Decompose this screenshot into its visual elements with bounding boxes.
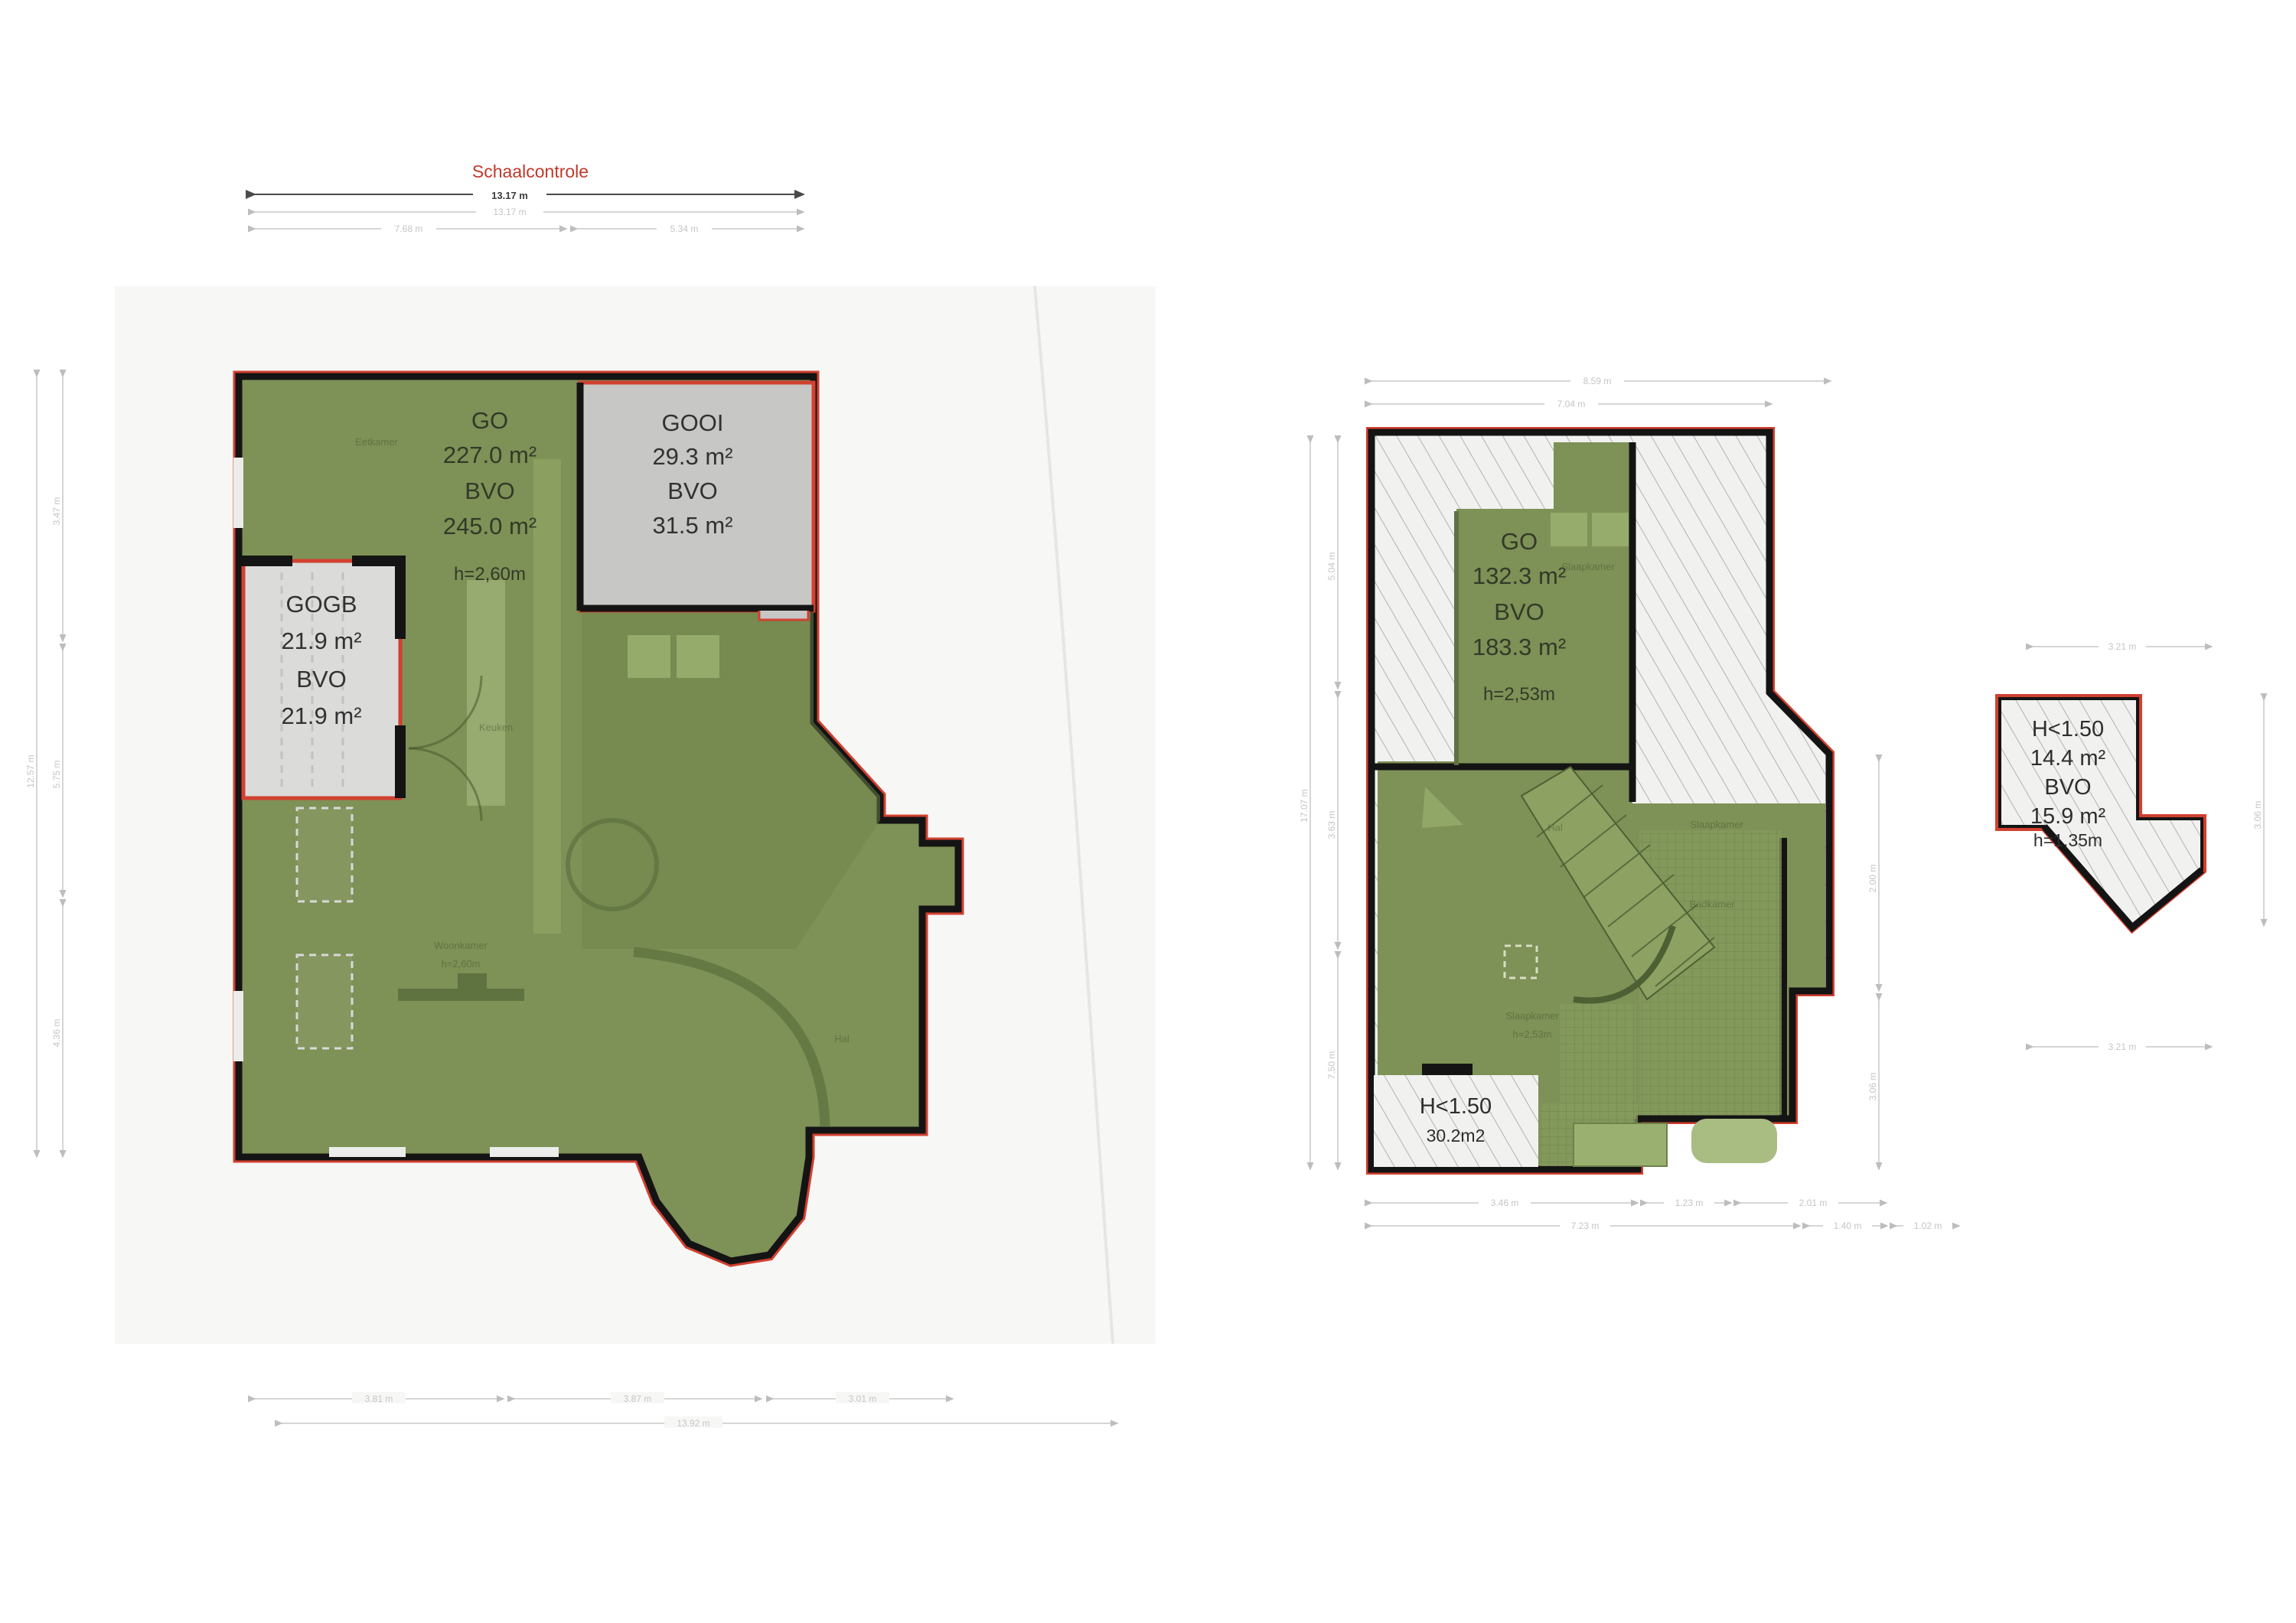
ff-room-bathroom: Badkamer <box>1689 898 1735 910</box>
ff-dim-bottom-seg3: 2.01 m <box>1799 1198 1828 1208</box>
gogb-wall-right-top <box>395 566 406 639</box>
gf-window-bottom-2 <box>490 1147 559 1157</box>
gogb-area: 21.9 m² <box>281 627 361 654</box>
ff-dim-bottom-extra1: 1.40 m <box>1834 1221 1862 1231</box>
gf-cupboard-1 <box>628 635 670 678</box>
first-floor-plan: H<1.50 30.2m2 GO 132.3 m² BVO 183.3 m² h… <box>1299 374 1959 1231</box>
ff-dim-top-total: 8.59 m <box>1583 376 1612 386</box>
gf-dim-bottom-seg1: 3.81 m <box>365 1393 393 1404</box>
ff-low-zone: H<1.50 30.2m2 <box>1374 1075 1538 1167</box>
scale-check-title: Schaalcontrole <box>472 161 589 181</box>
gf-bvo-value: 245.0 m² <box>443 513 536 539</box>
gf-dim-left-seg2: 5.75 m <box>51 761 62 789</box>
ff-bed <box>1574 1123 1667 1166</box>
gogb-wall-top-left <box>239 556 292 566</box>
gf-dashed-furniture-1 <box>297 808 352 901</box>
attic-dim-right: 3.06 m <box>2252 801 2263 829</box>
ff-dim-bottom-seg1: 3.46 m <box>1491 1198 1519 1208</box>
ff-height: h=2,53m <box>1483 684 1555 705</box>
gogb-wall-top-right <box>352 556 406 566</box>
ff-dim-bottom-seg2: 1.23 m <box>1675 1198 1704 1208</box>
ff-go-label: GO <box>1501 528 1538 555</box>
gf-dim-bottom-seg2: 3.87 m <box>624 1393 652 1404</box>
attic-section: H<1.50 14.4 m² BVO 15.9 m² h=1,35m 3.21 … <box>2000 640 2264 1052</box>
gf-window-left-1 <box>233 458 243 528</box>
gf-window-left-2 <box>233 991 243 1061</box>
ff-low-zone-line2: 30.2m2 <box>1427 1126 1486 1146</box>
attic-area: 14.4 m² <box>2030 746 2106 771</box>
ff-dim-bottom-extra2: 1.02 m <box>1914 1221 1942 1231</box>
floorplan-canvas: Schaalcontrole 13.17 m 13.17 m 7.68 m 5.… <box>0 0 2296 1623</box>
ff-go-value: 132.3 m² <box>1473 562 1566 589</box>
ff-dim-right-seg1: 2.00 m <box>1867 865 1878 893</box>
ff-dim-left-seg1: 5.04 m <box>1326 552 1337 581</box>
gf-cupboard-2 <box>677 635 719 678</box>
ground-floor-plan: GOOI 29.3 m² BVO 31.5 m² GOGB 21.9 m² BV… <box>25 286 1156 1429</box>
scale-seg-right: 5.34 m <box>670 223 699 234</box>
gf-room-living: Woonkamer <box>434 940 488 951</box>
ff-bvo-value: 183.3 m² <box>1473 634 1566 660</box>
gogb-bvo-area: 21.9 m² <box>281 702 361 729</box>
gf-window-bottom-1 <box>329 1147 406 1157</box>
ff-cupboard-2 <box>1592 513 1629 546</box>
floorplan-page: Schaalcontrole 13.17 m 13.17 m 7.68 m 5.… <box>0 0 2296 1623</box>
gf-dim-left-total: 12.57 m <box>25 754 36 787</box>
ff-room-bedroom-bottom: Slaapkamer <box>1505 1010 1559 1022</box>
gf-height: h=2,60m <box>454 564 526 585</box>
ff-bvo-label: BVO <box>1494 598 1544 625</box>
scale-check: Schaalcontrole 13.17 m 13.17 m 7.68 m 5.… <box>255 161 804 234</box>
ff-room-bedroom-top: Slaapkamer <box>1690 819 1743 830</box>
attic-height: h=1,35m <box>2033 830 2102 850</box>
ff-dim-left-seg3: 7.50 m <box>1326 1051 1337 1080</box>
ff-room-bedroom-bottom-height: h=2,53m <box>1513 1028 1552 1040</box>
ff-bathtub <box>1691 1119 1777 1163</box>
scale-total-light: 13.17 m <box>493 207 526 217</box>
ff-dim-top-inner: 7.04 m <box>1557 399 1586 409</box>
ff-room-hall: Hal <box>1548 822 1563 833</box>
gf-dim-left-seg1: 3.47 m <box>51 497 62 526</box>
attic-dim-bottom: 3.21 m <box>2108 1041 2137 1052</box>
ff-dim-right-seg2: 3.06 m <box>1867 1073 1878 1101</box>
gf-room-dining: Eetkamer <box>355 436 398 448</box>
gf-bvo-label: BVO <box>465 477 514 504</box>
attic-dim-top: 3.21 m <box>2108 641 2137 652</box>
gf-kitchen-counter <box>533 459 561 934</box>
gf-dashed-furniture-2 <box>297 955 352 1048</box>
gooi-door-notch <box>759 611 808 620</box>
ff-cupboard-1 <box>1551 513 1587 546</box>
gogb-wall-right-bottom <box>395 725 406 798</box>
gf-dim-left-seg3: 4.36 m <box>51 1019 62 1048</box>
ff-low-zone-fill <box>1374 1075 1538 1167</box>
ff-dim-bottom-total: 7.23 m <box>1571 1221 1600 1231</box>
scale-total-dark: 13.17 m <box>491 190 528 201</box>
attic-bvo-label: BVO <box>2044 775 2091 800</box>
gf-go-value: 227.0 m² <box>443 442 536 468</box>
gf-room-hall: Hal <box>834 1033 850 1045</box>
gf-room-gogb: GOGB 21.9 m² BVO 21.9 m² <box>239 556 406 798</box>
gf-room-living-height: h=2,60m <box>442 958 481 970</box>
gf-fireplace <box>458 973 487 990</box>
ff-room-bedroom-mid: Slaapkamer <box>1561 561 1615 572</box>
gogb-name: GOGB <box>285 591 357 618</box>
attic-bvo-area: 15.9 m² <box>2030 804 2106 829</box>
gf-dim-bottom-total: 13.92 m <box>677 1418 709 1429</box>
gooi-bvo-label: BVO <box>667 477 717 504</box>
gogb-bvo-label: BVO <box>296 666 346 693</box>
ff-low-zone-line1: H<1.50 <box>1420 1094 1492 1119</box>
attic-line1: H<1.50 <box>2032 717 2104 741</box>
gf-room-kitchen: Keuken <box>479 722 513 733</box>
gooi-bvo-area: 31.5 m² <box>652 512 732 539</box>
ff-bathroom-tiles <box>1560 1004 1636 1119</box>
scale-seg-left: 7.68 m <box>395 223 423 234</box>
gf-kitchen-island <box>467 580 505 806</box>
gf-dim-bottom-seg3: 3.01 m <box>849 1393 877 1404</box>
gooi-area: 29.3 m² <box>652 443 732 470</box>
gf-room-gooi: GOOI 29.3 m² BVO 31.5 m² <box>580 383 814 620</box>
gooi-name: GOOI <box>662 409 724 436</box>
ff-dim-left-total: 17.07 m <box>1299 789 1309 822</box>
gf-fireplace-base <box>398 989 524 1001</box>
ff-dim-left-seg2: 3.63 m <box>1326 811 1337 839</box>
gf-go-label: GO <box>471 407 508 434</box>
